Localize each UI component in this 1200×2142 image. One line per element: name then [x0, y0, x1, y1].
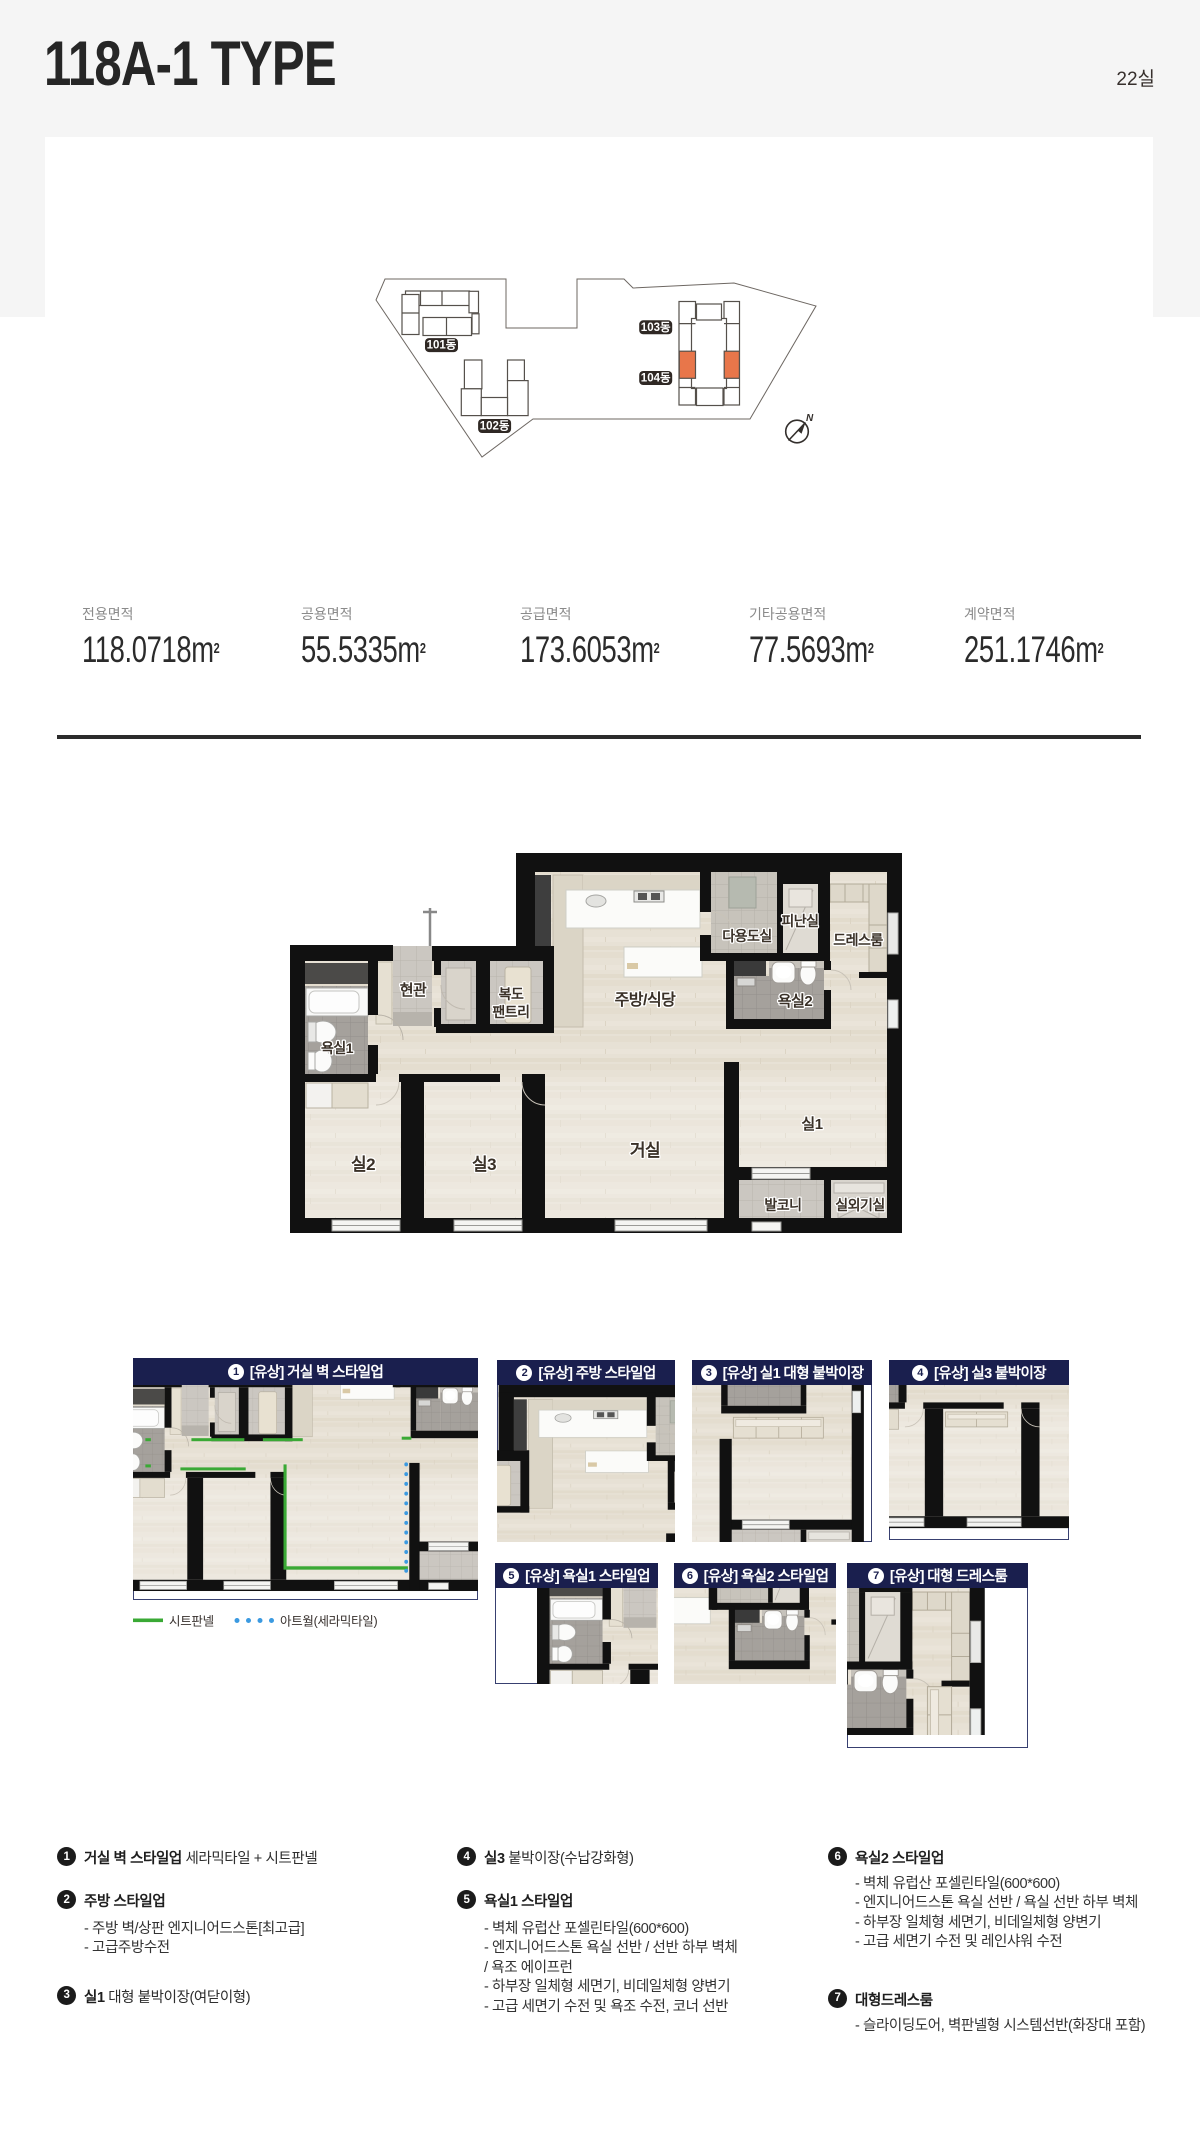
svg-text:시트판넬: 시트판넬 [169, 1614, 214, 1628]
svg-text:102동: 102동 [480, 420, 510, 433]
svg-text:101동: 101동 [427, 339, 457, 352]
svg-text:104동: 104동 [641, 372, 671, 385]
svg-text:103동: 103동 [641, 321, 671, 334]
svg-text:아트월(세라믹타일): 아트월(세라믹타일) [280, 1614, 377, 1628]
svg-text:N: N [806, 413, 814, 424]
